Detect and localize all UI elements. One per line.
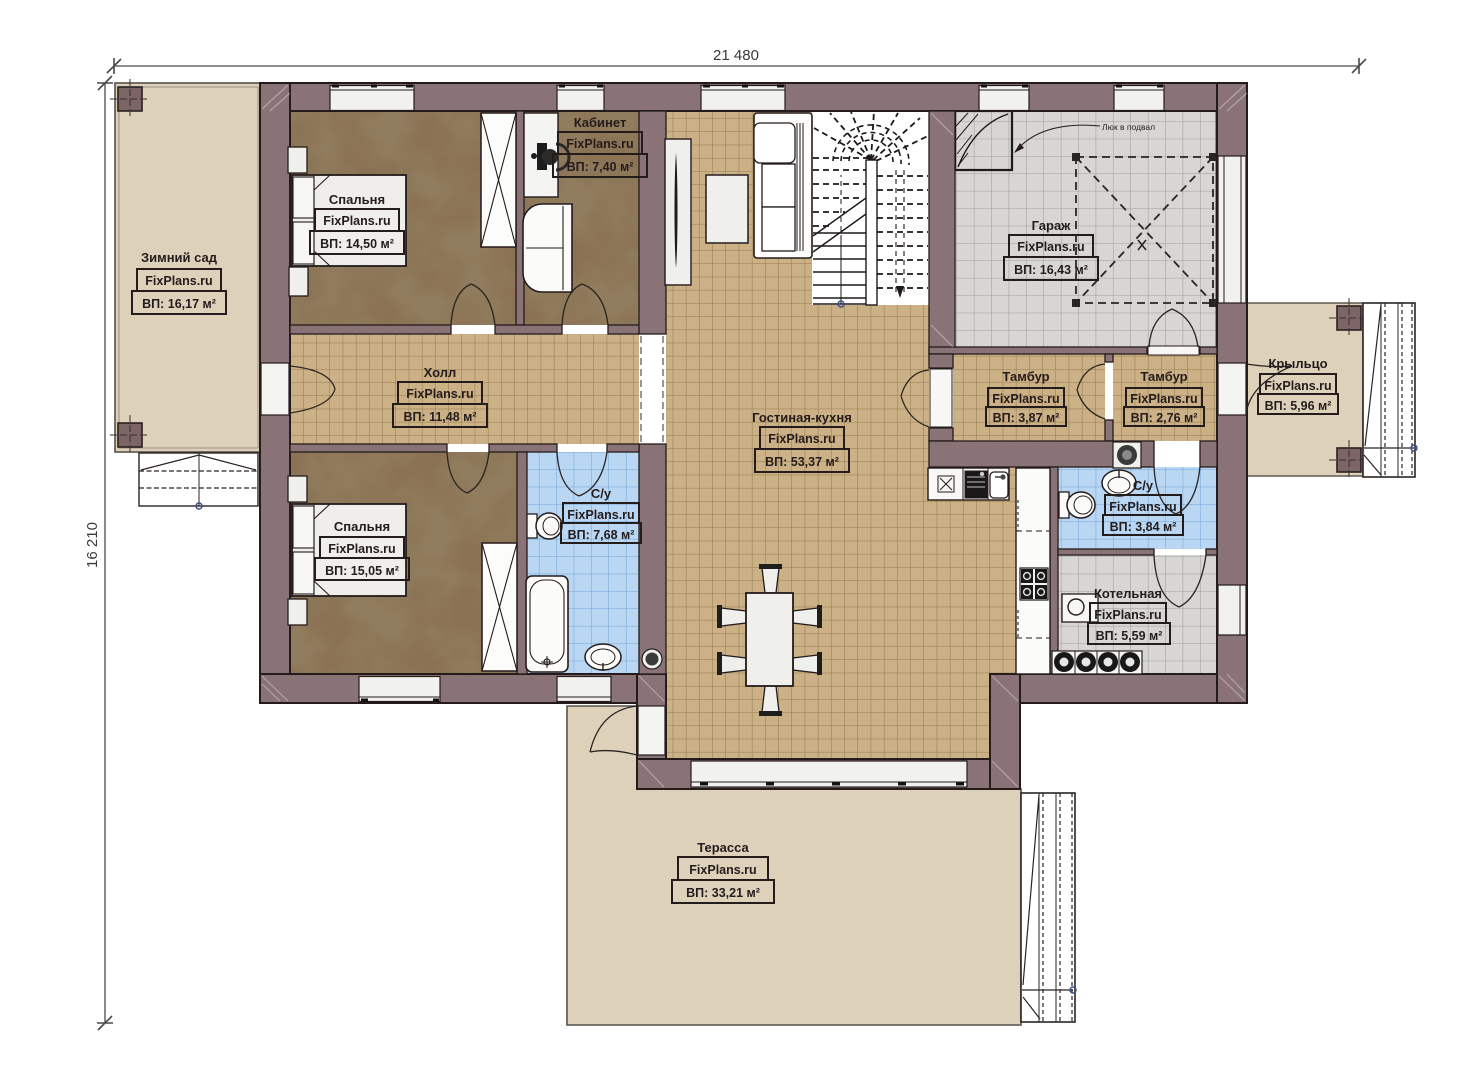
- svg-text:Терасса: Терасса: [697, 840, 749, 855]
- svg-text:16 210: 16 210: [84, 522, 101, 568]
- svg-text:Тамбур: Тамбур: [1002, 369, 1049, 384]
- svg-text:Гостиная-кухня: Гостиная-кухня: [752, 410, 852, 425]
- svg-text:FixPlans.ru: FixPlans.ru: [992, 392, 1059, 406]
- svg-text:Спальня: Спальня: [329, 192, 385, 207]
- svg-text:ВП: 15,05 м²: ВП: 15,05 м²: [325, 564, 399, 578]
- svg-text:ВП: 3,84 м²: ВП: 3,84 м²: [1110, 520, 1177, 534]
- svg-text:FixPlans.ru: FixPlans.ru: [1130, 392, 1197, 406]
- svg-text:С/у: С/у: [591, 486, 612, 501]
- svg-text:Крыльцо: Крыльцо: [1268, 356, 1327, 371]
- svg-text:Холл: Холл: [424, 365, 457, 380]
- svg-text:Спальня: Спальня: [334, 519, 390, 534]
- svg-text:Кабинет: Кабинет: [574, 115, 627, 130]
- svg-text:Гараж: Гараж: [1032, 218, 1072, 233]
- svg-text:FixPlans.ru: FixPlans.ru: [406, 387, 473, 401]
- svg-text:С/у: С/у: [1133, 478, 1154, 493]
- svg-text:ВП: 7,40 м²: ВП: 7,40 м²: [567, 160, 634, 174]
- svg-text:ВП: 5,59 м²: ВП: 5,59 м²: [1096, 629, 1163, 643]
- svg-text:ВП: 14,50 м²: ВП: 14,50 м²: [320, 237, 394, 251]
- svg-text:ВП: 16,43 м²: ВП: 16,43 м²: [1014, 263, 1088, 277]
- svg-text:FixPlans.ru: FixPlans.ru: [689, 863, 756, 877]
- svg-text:ВП: 11,48 м²: ВП: 11,48 м²: [403, 410, 476, 424]
- svg-text:Котельная: Котельная: [1094, 586, 1162, 601]
- svg-text:Люк в подвал: Люк в подвал: [1102, 122, 1155, 132]
- svg-text:FixPlans.ru: FixPlans.ru: [1264, 379, 1331, 393]
- svg-text:FixPlans.ru: FixPlans.ru: [768, 432, 835, 446]
- svg-text:ВП: 5,96 м²: ВП: 5,96 м²: [1265, 399, 1332, 413]
- svg-text:ВП: 2,76 м²: ВП: 2,76 м²: [1131, 411, 1198, 425]
- svg-text:ВП: 53,37 м²: ВП: 53,37 м²: [765, 455, 839, 469]
- svg-text:FixPlans.ru: FixPlans.ru: [145, 274, 212, 288]
- svg-text:FixPlans.ru: FixPlans.ru: [566, 137, 633, 151]
- svg-text:21 480: 21 480: [713, 47, 759, 64]
- svg-text:FixPlans.ru: FixPlans.ru: [1017, 240, 1084, 254]
- svg-text:FixPlans.ru: FixPlans.ru: [567, 508, 634, 522]
- svg-text:FixPlans.ru: FixPlans.ru: [323, 214, 390, 228]
- svg-text:FixPlans.ru: FixPlans.ru: [1094, 608, 1161, 622]
- svg-text:ВП: 3,87 м²: ВП: 3,87 м²: [993, 411, 1060, 425]
- svg-text:Тамбур: Тамбур: [1140, 369, 1187, 384]
- svg-text:ВП: 7,68 м²: ВП: 7,68 м²: [568, 528, 635, 542]
- svg-text:FixPlans.ru: FixPlans.ru: [328, 542, 395, 556]
- svg-text:ВП: 33,21 м²: ВП: 33,21 м²: [686, 886, 760, 900]
- svg-text:FixPlans.ru: FixPlans.ru: [1109, 500, 1176, 514]
- svg-text:ВП: 16,17 м²: ВП: 16,17 м²: [142, 297, 216, 311]
- svg-text:Зимний сад: Зимний сад: [141, 250, 218, 265]
